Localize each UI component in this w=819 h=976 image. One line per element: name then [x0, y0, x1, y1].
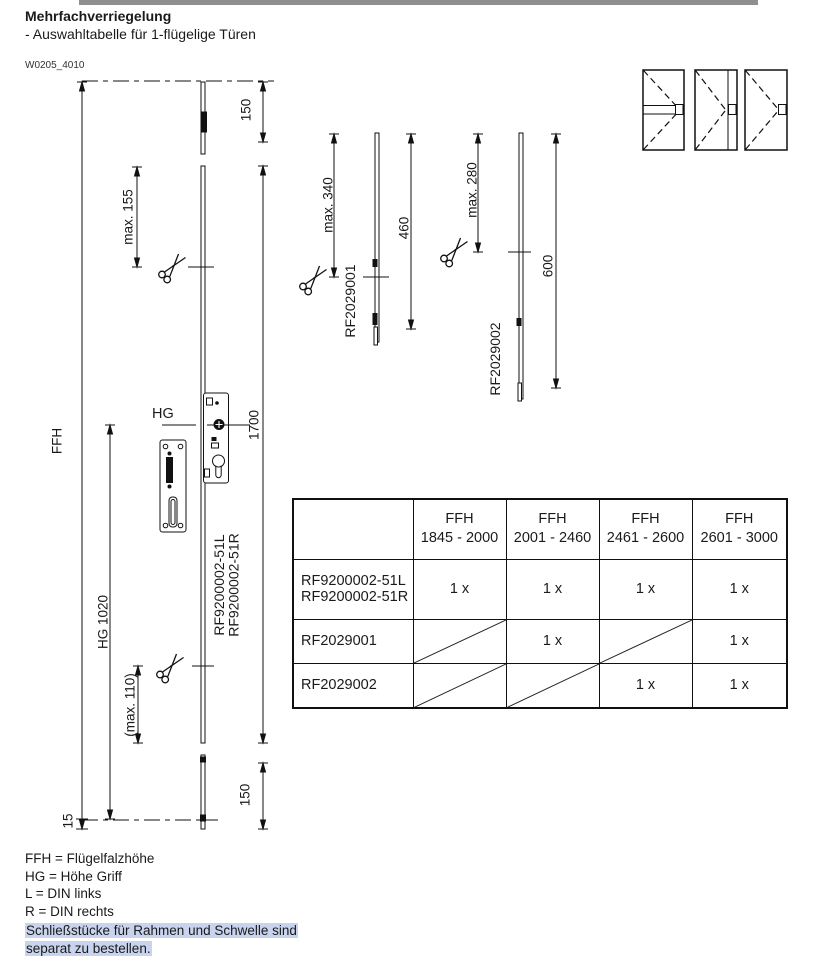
catalog-page: Mehrfachverriegelung - Auswahltabelle fü…	[0, 0, 819, 976]
label-hg-1020: HG 1020	[96, 595, 111, 649]
col-range: 1845 - 2000	[414, 529, 506, 549]
scissors-icon	[157, 654, 184, 683]
note-highlighted-line: Schließstücke für Rahmen und Schwelle si…	[25, 923, 298, 938]
col-range: 2601 - 3000	[693, 529, 787, 549]
label-bottom-150: 150	[238, 784, 253, 807]
row-label-main-lock: RF9200002-51L RF9200002-51R	[293, 559, 413, 619]
label-ffh: FFH	[50, 428, 65, 454]
col-header-ffh-2601-3000: FFH 2601 - 3000	[692, 499, 787, 559]
lock-case	[204, 393, 229, 483]
legend-line-hg: HG = Höhe Griff	[25, 868, 298, 886]
bottom-shootbolt	[201, 815, 206, 821]
label-1700: 1700	[247, 410, 262, 440]
legend-line-l: L = DIN links	[25, 885, 298, 903]
col-title: FFH	[600, 510, 692, 530]
col-title: FFH	[693, 510, 787, 530]
door-symbol-3	[745, 70, 787, 150]
not-applicable-cell	[506, 663, 599, 708]
label-15: 15	[61, 813, 76, 828]
note-highlighted-line: separat zu bestellen.	[25, 941, 152, 956]
part-number: RF9200002-51L	[301, 573, 413, 589]
row-label-ext2: RF2029002	[293, 663, 413, 708]
dim-top-150	[258, 82, 268, 142]
table-row-main-lock: RF9200002-51L RF9200002-51R 1 x 1 x 1 x …	[293, 559, 787, 619]
col-range: 2461 - 2600	[600, 529, 692, 549]
qty-cell: 1 x	[413, 559, 506, 619]
table-row-ext1: RF2029001 1 x 1 x	[293, 619, 787, 663]
scissors-icon	[300, 266, 327, 295]
legend-line-r: R = DIN rechts	[25, 903, 298, 921]
label-ext-part-2: RF2029002	[487, 322, 503, 395]
label-600: 600	[541, 255, 556, 278]
not-applicable-cell	[413, 619, 506, 663]
qty-cell: 1 x	[692, 559, 787, 619]
handle-spindle	[214, 419, 225, 430]
col-header-ffh-1845-2000: FFH 1845 - 2000	[413, 499, 506, 559]
col-title: FFH	[507, 510, 599, 530]
door-symbol-1	[643, 70, 684, 150]
qty-cell: 1 x	[506, 559, 599, 619]
extension-rail-1	[373, 133, 380, 345]
col-range: 2001 - 2460	[507, 529, 599, 549]
table-corner-cell	[293, 499, 413, 559]
legend-note: Schließstücke für Rahmen und Schwelle si…	[25, 922, 298, 957]
door-symbol-2	[695, 70, 737, 150]
qty-cell: 1 x	[599, 559, 692, 619]
legend-line-ffh: FFH = Flügelfalzhöhe	[25, 850, 298, 868]
not-applicable-cell	[413, 663, 506, 708]
scissors-icon	[441, 238, 468, 267]
table-header-row: FFH 1845 - 2000 FFH 2001 - 2460 FFH 2461…	[293, 499, 787, 559]
selection-table: FFH 1845 - 2000 FFH 2001 - 2460 FFH 2461…	[292, 498, 788, 709]
label-460: 460	[397, 217, 412, 240]
label-part-right: RF9200002-51R	[225, 533, 241, 637]
technical-diagram: FFH 150 max. 155 HG 1700 RF9200002-51L R…	[0, 0, 819, 976]
qty-cell: 1 x	[506, 619, 599, 663]
strike-plate	[160, 440, 186, 532]
label-ext-part-1: RF2029001	[342, 264, 358, 337]
table-row-ext2: RF2029002 1 x 1 x	[293, 663, 787, 708]
label-max-280: max. 280	[465, 162, 480, 218]
col-title: FFH	[414, 510, 506, 530]
label-hg: HG	[152, 406, 174, 422]
extension-rail-2	[517, 133, 524, 401]
qty-cell: 1 x	[692, 663, 787, 708]
label-top-150: 150	[239, 99, 254, 122]
qty-cell: 1 x	[692, 619, 787, 663]
dim-bottom-150	[258, 763, 268, 829]
part-number: RF9200002-51R	[301, 589, 413, 605]
bottom-shootbolt-top	[201, 757, 206, 762]
scissors-icon	[159, 254, 186, 283]
label-max-110: (max. 110)	[123, 673, 138, 737]
not-applicable-cell	[599, 619, 692, 663]
col-header-ffh-2461-2600: FFH 2461 - 2600	[599, 499, 692, 559]
qty-cell: 1 x	[599, 663, 692, 708]
dim-1700	[258, 166, 268, 743]
dim-ffh	[77, 82, 87, 829]
label-max-340: max. 340	[321, 177, 336, 233]
top-shootbolt	[202, 112, 207, 132]
legend: FFH = Flügelfalzhöhe HG = Höhe Griff L =…	[25, 850, 298, 958]
col-header-ffh-2001-2460: FFH 2001 - 2460	[506, 499, 599, 559]
row-label-ext1: RF2029001	[293, 619, 413, 663]
label-max-155: max. 155	[121, 189, 136, 245]
